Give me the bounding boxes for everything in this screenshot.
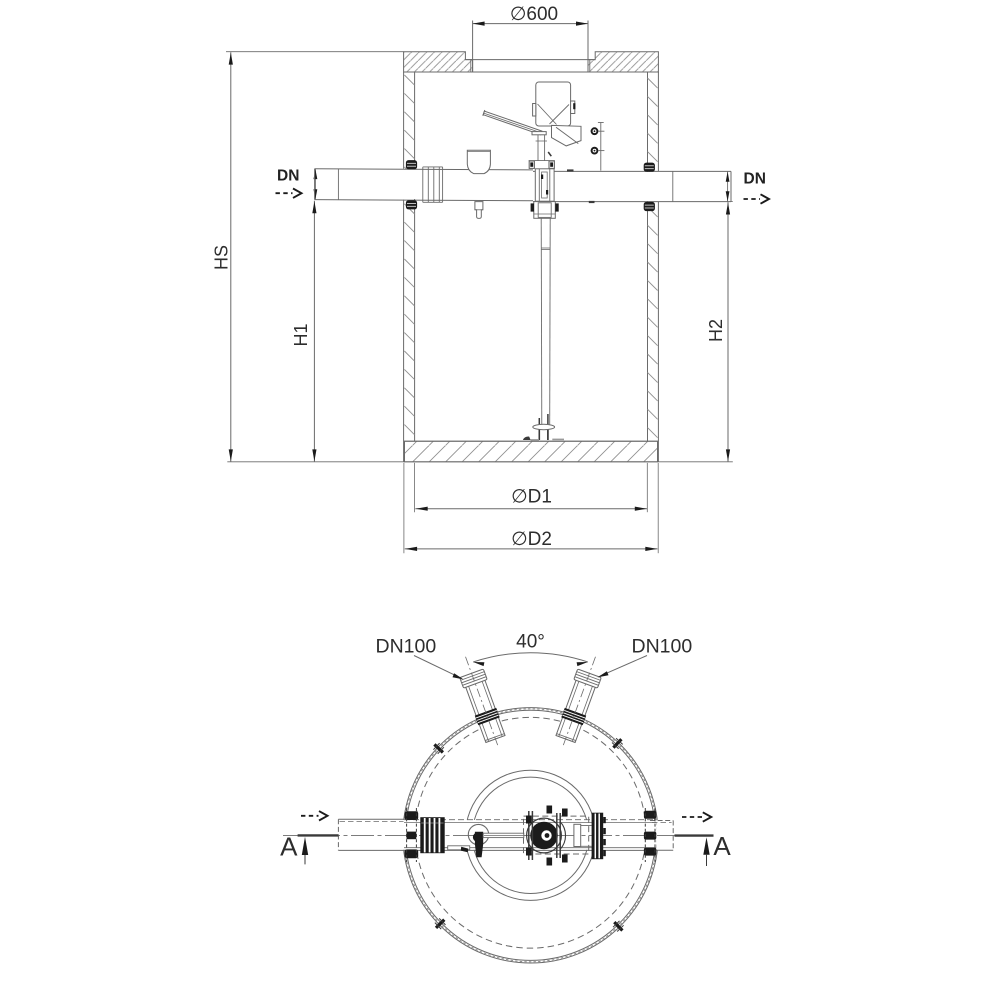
svg-text:∅D1: ∅D1 [511, 487, 552, 508]
svg-text:H2: H2 [706, 319, 726, 342]
svg-text:DN100: DN100 [376, 635, 437, 657]
svg-text:40°: 40° [516, 632, 545, 653]
svg-text:DN: DN [277, 168, 299, 185]
svg-text:∅600: ∅600 [510, 4, 558, 25]
svg-text:A: A [280, 831, 298, 861]
svg-text:H1: H1 [291, 323, 311, 346]
svg-text:A: A [713, 831, 731, 861]
svg-text:DN100: DN100 [632, 635, 693, 657]
svg-text:DN: DN [744, 171, 766, 188]
svg-text:HS: HS [212, 245, 232, 270]
svg-text:∅D2: ∅D2 [511, 529, 552, 550]
